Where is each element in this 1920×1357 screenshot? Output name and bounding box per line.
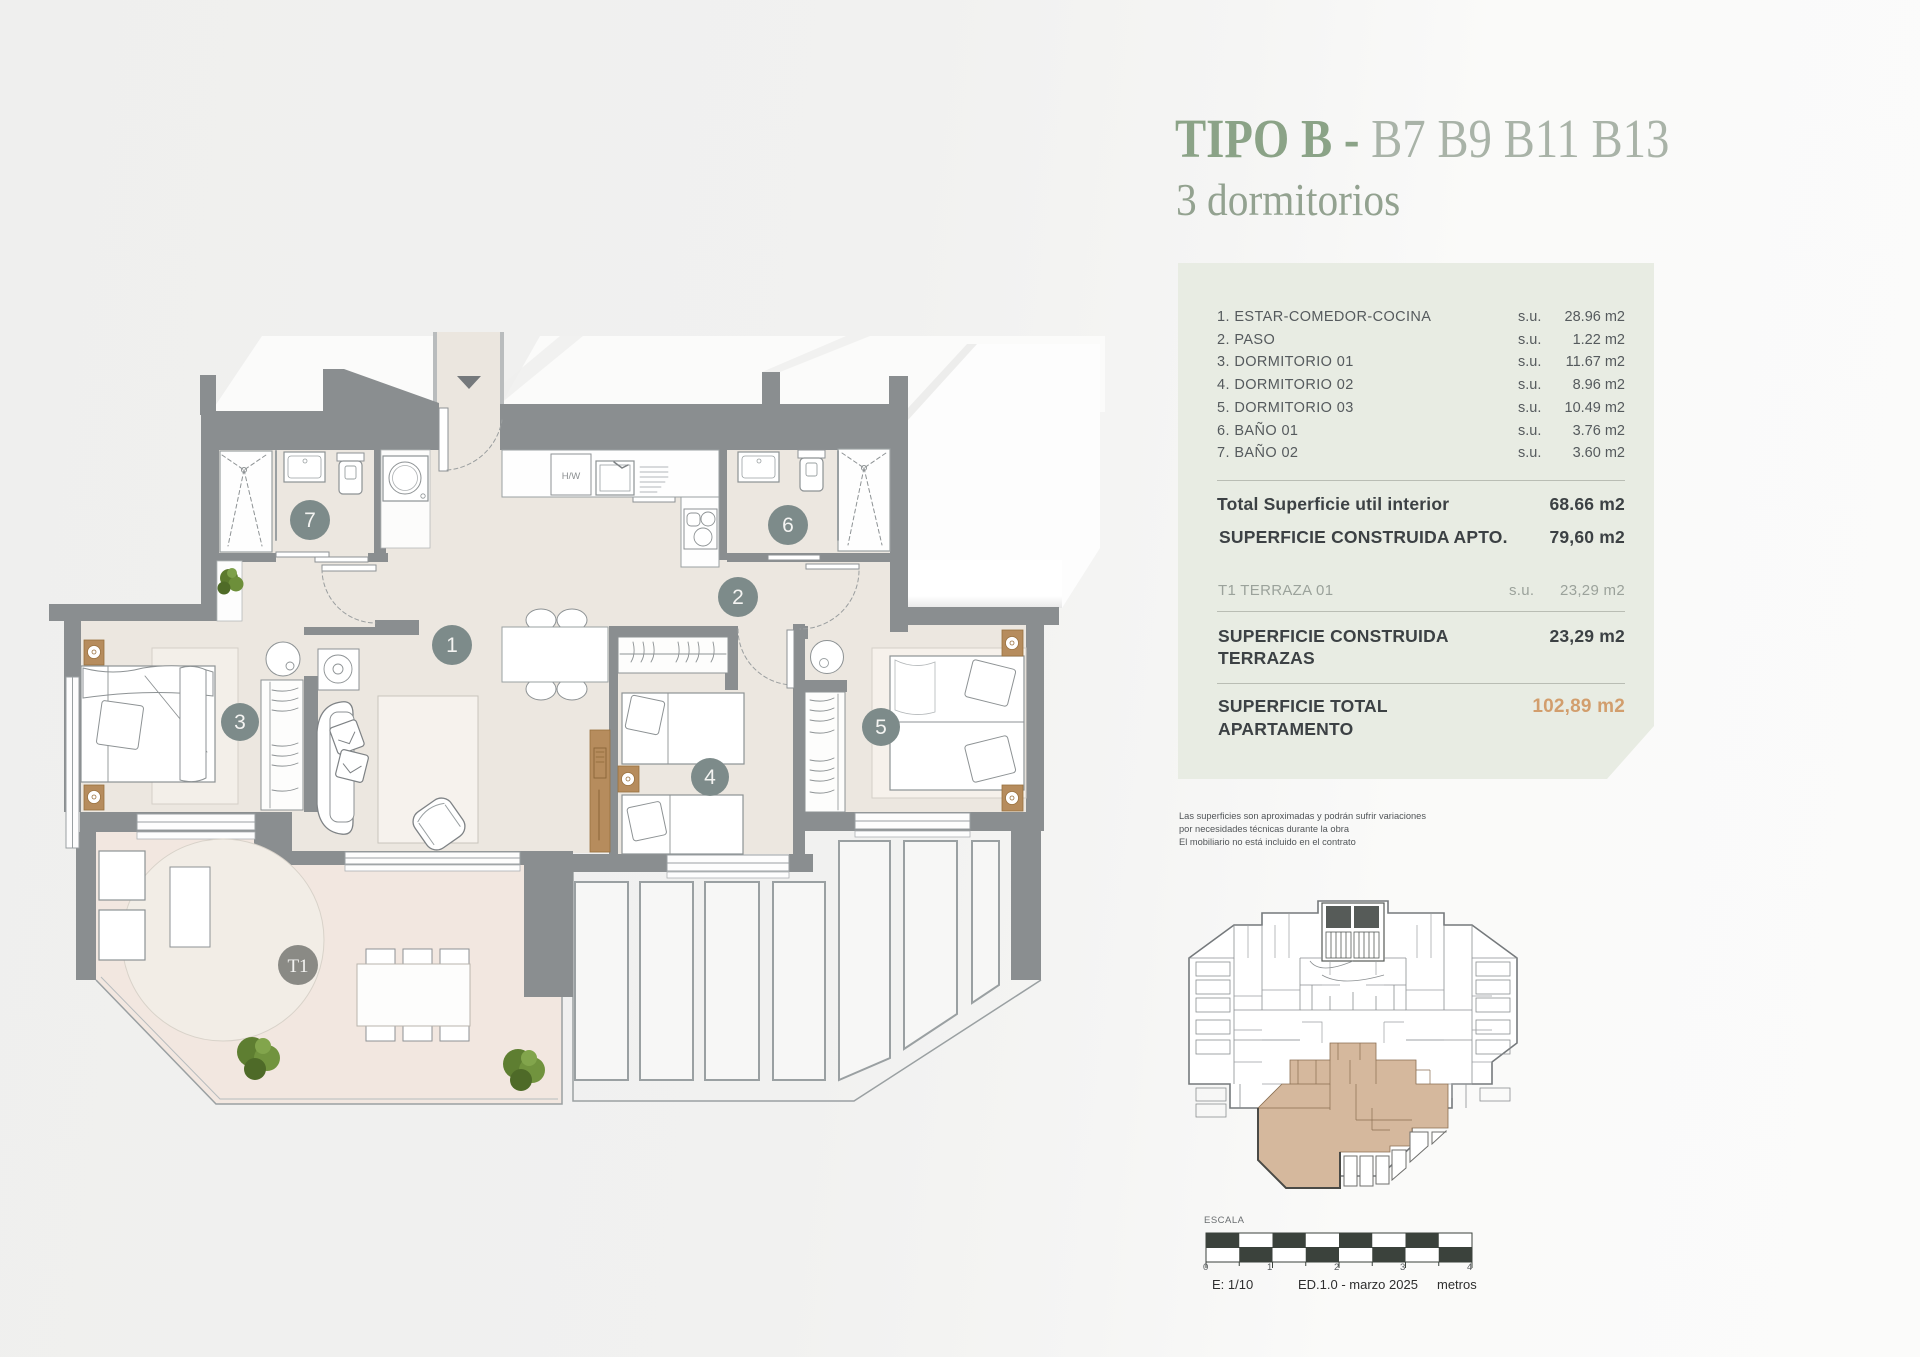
svg-text:T1: T1 xyxy=(287,956,308,977)
svg-text:2: 2 xyxy=(732,586,744,609)
svg-text:5: 5 xyxy=(875,716,887,739)
svg-text:7: 7 xyxy=(304,509,316,532)
svg-text:3: 3 xyxy=(234,711,246,734)
svg-text:4: 4 xyxy=(704,766,716,789)
svg-text:6: 6 xyxy=(782,514,794,537)
svg-text:H/W: H/W xyxy=(562,471,581,482)
svg-text:1: 1 xyxy=(446,634,458,657)
